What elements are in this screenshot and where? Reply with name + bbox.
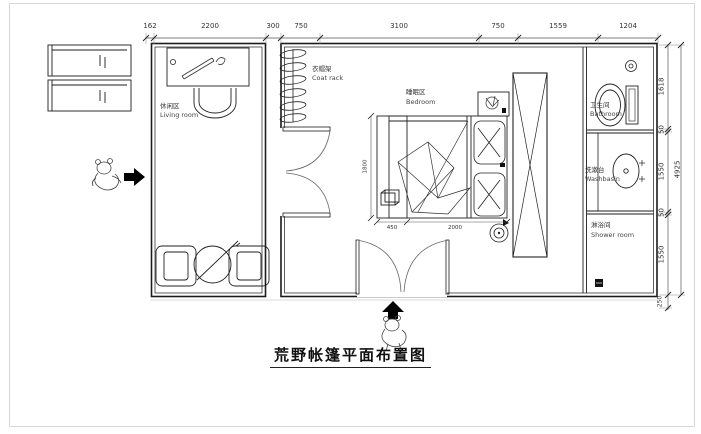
door-opening-bottom: [357, 292, 447, 302]
bathroom-label-en: Bathroom: [590, 110, 622, 118]
dim-right-250: 250: [656, 282, 665, 322]
dim-bench-450: 450: [377, 224, 407, 233]
dim-lines-top: [143, 33, 661, 44]
dim-right-4925: 4925: [674, 150, 683, 190]
dim-right-1550b: 1550: [658, 235, 667, 275]
coat-rack: [280, 48, 307, 123]
dim-right-1618: 1618: [658, 67, 667, 107]
floor-plan-page: 162 2200 300 750 3100 750 1559 1204 1618…: [0, 0, 701, 434]
dim-right-1550a: 1550: [658, 152, 667, 192]
shower-room-label-zh: 淋浴间: [591, 221, 611, 229]
dim-top-750a: 750: [283, 22, 319, 31]
double-door-middle: [283, 127, 330, 217]
dim-right-50b: 50: [658, 193, 667, 233]
floor-plan-drawing: [0, 0, 701, 434]
dim-top-1204: 1204: [610, 22, 646, 31]
dim-top-162: 162: [132, 22, 168, 31]
washbasin-label-en: Washbasin: [585, 175, 620, 183]
armchair-left: [156, 246, 196, 286]
title-wrap: 荒野帐篷平面布置图: [0, 344, 701, 368]
bedside-bench: [377, 116, 407, 218]
round-table: [194, 241, 240, 283]
living-room-label-zh: 休闲区: [160, 102, 180, 110]
shower-drain: [595, 279, 603, 287]
armchair-right: [229, 246, 269, 286]
bedroom-label-zh: 睡眠区: [406, 88, 426, 96]
bathroom-label-zh: 卫生间: [590, 101, 610, 109]
pillow-bottom: [474, 173, 505, 216]
washbasin-label-zh: 洗漱台: [585, 166, 605, 174]
door-opening-middle: [277, 128, 286, 216]
bedroom-label-en: Bedroom: [406, 98, 435, 106]
paper-roll: [626, 61, 637, 72]
living-room-label-en: Living room: [160, 111, 198, 119]
wardrobe: [513, 73, 547, 257]
mascot-sketch-left: [92, 159, 121, 191]
desk-chair: [194, 88, 236, 118]
dim-right-50a: 50: [658, 110, 667, 150]
entrance-arrow-left: [124, 168, 145, 186]
shower-room-label-en: Shower room: [591, 231, 634, 239]
dim-bed-2000: 2000: [440, 224, 470, 233]
plant-sketch: [486, 96, 506, 113]
dim-top-1559: 1559: [540, 22, 576, 31]
camp-stove: [490, 163, 509, 242]
pen-sketch: [170, 58, 225, 79]
dim-top-2200: 2200: [192, 22, 228, 31]
drawing-title: 荒野帐篷平面布置图: [270, 344, 431, 368]
lounger-bottom: [48, 80, 131, 111]
coat-rack-label-zh: 衣帽架: [312, 65, 332, 73]
dim-bed-1800: 1800: [362, 147, 371, 187]
desk: [167, 48, 249, 86]
pillow-top: [474, 121, 505, 164]
double-door-bottom: [345, 240, 460, 298]
lounger-top: [48, 45, 131, 76]
blanket-sketch: [398, 142, 470, 214]
walls-living-block: [152, 44, 266, 297]
dim-top-3100: 3100: [381, 22, 417, 31]
coat-rack-label-en: Coat rack: [312, 74, 343, 82]
dim-top-750b: 750: [480, 22, 516, 31]
